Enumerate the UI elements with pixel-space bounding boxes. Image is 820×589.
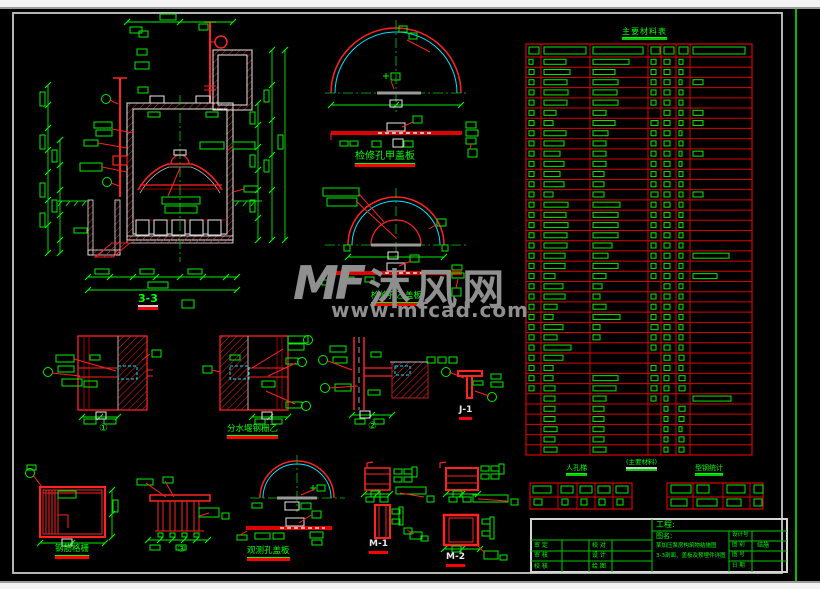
reviewer-label: 审 核 [534, 553, 548, 559]
drawing-no-label: 图 号 [732, 553, 745, 559]
subtable-left-title: 人孔梯 [566, 465, 587, 474]
page-top-strip [0, 0, 820, 9]
detail-circle-1: ① [99, 424, 108, 434]
designer-label: 设 计 [592, 553, 606, 559]
drawing-type-value: 结施 [757, 543, 769, 549]
date-label: 日 期 [732, 564, 745, 570]
m1-label: M-1 [369, 540, 388, 551]
drafter-label: 绘 图 [592, 564, 606, 570]
approver-label: 审 定 [534, 543, 548, 549]
section-3-3-structure [58, 22, 262, 262]
cad-viewer-page: MF 沐风网 www.mfcad.com 3-3 检修孔甲盖板 检修孔乙盖板 分… [0, 0, 820, 589]
cover-plate-a-drawing [325, 20, 467, 135]
m2-label: M-2 [446, 553, 465, 564]
anchor-bars-detail [150, 495, 210, 531]
weir-wall-detail-1 [78, 336, 147, 410]
section-3-3-label: 3-3 [138, 293, 158, 307]
drawing-desc-line2: 3-3剖面、盖板及预埋件详图 [656, 554, 725, 560]
j1-label: J-1 [459, 406, 472, 417]
subtable-right-title: 型钢统计 [695, 465, 723, 474]
column-footings [136, 220, 221, 235]
m1-detail [365, 462, 390, 538]
subtable-middle-title: (主要材料) [626, 459, 657, 469]
rebar-grating-label: 钢筋格栅 [55, 545, 89, 556]
vent-cover-drawing [246, 455, 345, 530]
watermark-url: www.mfcad.com [331, 298, 529, 322]
weir-grille-label: 分水堰钢栅乙 [227, 425, 278, 436]
drawing-name-label: 图名: [656, 533, 672, 540]
tee-wall-detail [354, 337, 428, 410]
drawing-type-label: 图 别 [732, 543, 745, 549]
checker-label: 校 对 [592, 543, 606, 549]
cover-a-label: 检修孔甲盖板 [355, 152, 415, 164]
vent-cover-label: 观测孔盖板 [247, 547, 290, 558]
material-table-title: 主要材料表 [622, 28, 667, 38]
mfcad-watermark: MF 沐风网 www.mfcad.com [293, 256, 509, 317]
page-bottom-strip [0, 581, 820, 589]
drawing-desc-line1: 某加压泵房构筑物结施图 [656, 544, 717, 550]
rebar-grating-detail [40, 487, 105, 537]
detail-circle-3: ③ [177, 545, 186, 555]
weir-wall-detail-2 [220, 336, 288, 410]
design-no-label: 设计号 [732, 533, 749, 539]
detail-circle-2: ② [368, 422, 377, 432]
verifier-label: 校 核 [534, 564, 548, 570]
project-label: 工程: [656, 521, 675, 529]
m2-detail [440, 462, 478, 545]
